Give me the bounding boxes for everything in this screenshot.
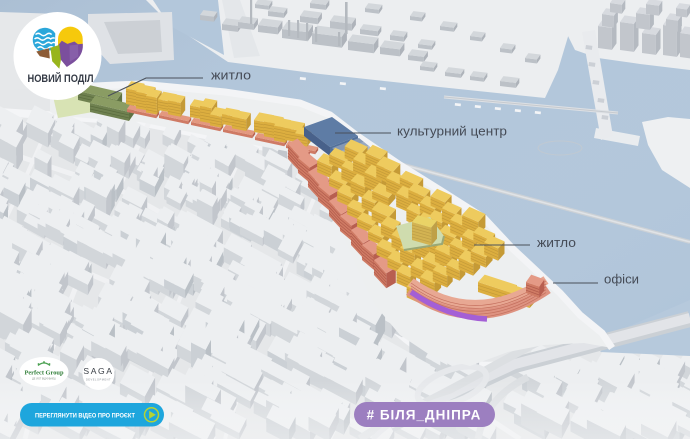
svg-text:офіси: офіси	[604, 272, 639, 287]
svg-text:ПЕРЕГЛЯНУТИ ВІДЕО ПРО ПРОЄКТ: ПЕРЕГЛЯНУТИ ВІДЕО ПРО ПРОЄКТ	[35, 412, 135, 419]
svg-text:житло: житло	[211, 68, 251, 83]
svg-text:SAGA: SAGA	[83, 366, 113, 376]
svg-text:культурний центр: культурний центр	[397, 124, 507, 139]
svg-text:DEVELOPMENT: DEVELOPMENT	[86, 378, 111, 382]
svg-text:Perfect Group: Perfect Group	[24, 370, 64, 377]
svg-text:НОВИЙ ПОДІЛ: НОВИЙ ПОДІЛ	[28, 72, 94, 85]
svg-text:ДЕ УЮТ ВІДЧУВАЄШ: ДЕ УЮТ ВІДЧУВАЄШ	[32, 378, 56, 381]
svg-text:житло: житло	[537, 235, 576, 250]
svg-text:# БІЛЯ_ДНІПРА: # БІЛЯ_ДНІПРА	[367, 408, 482, 423]
